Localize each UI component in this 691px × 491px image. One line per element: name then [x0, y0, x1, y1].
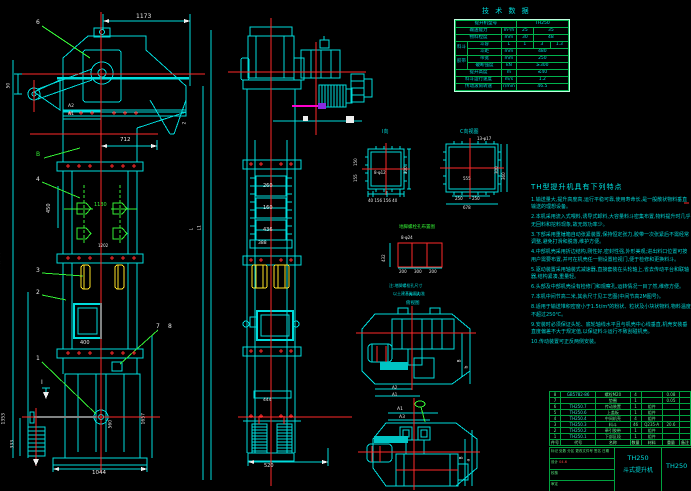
- plan1-title-topview: 俯视图: [406, 302, 420, 307]
- feature-item: 1.输送量大,提升高度高,运行平稳可靠,使用寿命长,是一般散状物料垂直输送的理想…: [531, 197, 691, 212]
- anchor-note-line1: 注:地脚螺栓孔尺寸: [389, 284, 422, 288]
- title-block-drawing-no-cell: TH250: [662, 448, 691, 491]
- tech-value: 46.5: [516, 84, 568, 91]
- bom-header-material: 材料: [641, 440, 662, 446]
- bom-header-name: 名称: [596, 440, 630, 446]
- tech-label: 斗容: [468, 42, 502, 49]
- tech-label: 物料粒度: [456, 35, 502, 42]
- design-label: 设计: [551, 460, 558, 464]
- dim-1173: 1173: [136, 14, 151, 20]
- tech-unit: mm: [502, 35, 517, 42]
- feature-item: 5.驱动装置采用轴装式减速器,直接套装在头轮轴上,省去传动平台和联轴器,结构紧凑…: [531, 267, 691, 282]
- balloon-3: 3: [36, 268, 40, 274]
- view-c-dim-360: 360: [502, 172, 506, 180]
- product-model: TH250: [615, 454, 661, 462]
- dim-1202: 1202: [98, 244, 108, 248]
- dim-1353: 1353: [3, 413, 8, 424]
- tech-label: 带宽: [468, 56, 502, 63]
- tech-value: 25: [516, 28, 533, 35]
- dim-520: 520: [264, 464, 274, 469]
- view-i-title: Ⅰ向: [382, 130, 388, 135]
- tech-unit: kN: [502, 63, 517, 70]
- plan1-dim-a1: A1: [392, 393, 397, 397]
- drawing-number: TH250: [666, 462, 691, 470]
- plan2-dim-b: B: [461, 456, 466, 459]
- bom-header-remark: 备注: [679, 440, 690, 446]
- dim-560: 560: [110, 420, 115, 429]
- plan2-dim-a: a: [468, 459, 473, 462]
- tech-label: 斗距: [468, 49, 502, 56]
- tech-unit: m: [502, 70, 517, 77]
- dim-712: 712: [120, 138, 131, 144]
- bom-header-qty: 数量: [630, 440, 641, 446]
- tech-unit: m³/h: [502, 28, 517, 35]
- dim-1657: 1657: [143, 413, 148, 424]
- features-notes-block: TH型提升机具有下列特点 1.输送量大,提升高度高,运行平稳可靠,使用寿命长,是…: [531, 182, 691, 392]
- feature-item: 2.本机采用流入式喂料,诱导式卸料,大容量料斗密集布置,物料提升时几乎无回料和挖…: [531, 214, 691, 229]
- approve-row: 审定: [550, 481, 614, 491]
- tech-label: 料斗运行速度: [456, 77, 502, 84]
- dim-333: 333: [12, 440, 17, 449]
- tech-value: 1.2: [516, 77, 568, 84]
- title-block-revision-grid: 标记 处数 分区 更改文件号 签名 日期 设计 04.6 校核 审定: [550, 448, 615, 491]
- feature-item: 4.中部机壳采用折边结构,刚性好,密封性强,外形美观;进出料口位置可按用户需要布…: [531, 249, 691, 264]
- anchor-dim-432: 432: [382, 254, 386, 262]
- tech-label: 输送能力: [456, 28, 502, 35]
- dim-388: 388: [258, 242, 267, 247]
- anchor-dim-300: 300: [414, 270, 422, 274]
- feature-item: 8.适用于输送堆积密度小于1.5t/m³的粉状、粒状及小块状物料,物料温度不超过…: [531, 304, 691, 319]
- view-c-dim-300: 300: [495, 166, 499, 174]
- plan1-title-aa: A—A: [409, 294, 420, 299]
- tech-label: 提升机型号: [456, 21, 517, 28]
- bom-header-no: 件号: [550, 440, 561, 446]
- view-i-bottom-dims: 40 156 156 40: [368, 199, 397, 203]
- tech-label: 提升高度: [456, 70, 502, 77]
- view-i-dim-155: 155: [354, 174, 358, 182]
- anchor-layout-title: 地脚螺栓孔布置图: [399, 226, 435, 231]
- tech-label: 破断强度: [468, 63, 502, 70]
- product-name: 斗式提升机: [615, 465, 661, 474]
- cad-drawing-canvas: 1173 6 50 A2 A1 2 712 B 4 450 1130 1202 …: [0, 0, 691, 491]
- tech-value: 35: [533, 28, 568, 35]
- view-i-hole-note: 8-φ12: [374, 171, 386, 175]
- plan2-dim-a1: A1: [397, 408, 403, 413]
- tech-unit: r/min: [502, 84, 517, 91]
- design-row: 设计 04.6: [550, 459, 614, 470]
- dim-1044: 1044: [92, 471, 106, 477]
- check-row: 校核: [550, 470, 614, 481]
- view-c-title: C向视图: [460, 130, 479, 135]
- tech-unit: L: [502, 42, 517, 49]
- tech-value: 3: [533, 42, 550, 49]
- section-mark-1: Ⅰ: [41, 380, 43, 386]
- tech-table-title: 技 术 数 据: [482, 8, 531, 15]
- tech-data-table: 提升机型号 TH250 输送能力 m³/h 25 35 物料粒度 mm 30 4…: [455, 20, 569, 91]
- dim-a1: A1: [68, 113, 74, 118]
- red-signature-note: 04.6: [559, 460, 567, 464]
- tech-value: 480: [516, 49, 568, 56]
- title-block-product-cell: TH250 斗式提升机: [615, 448, 662, 491]
- tech-value: 1: [516, 42, 533, 49]
- bom-header-weight: 重量: [662, 440, 679, 446]
- bom-table: 8GB5782-86螺栓M2040.08 7垫圈10.05 6TH250.7传动…: [549, 391, 691, 446]
- tech-value: TH250: [516, 21, 568, 28]
- view-c-dim-250b: 250: [472, 197, 480, 201]
- plan2-dim-a3: A3: [399, 416, 405, 421]
- feature-item: 3.下部采用重锤箱自动张紧装置,保持恒定张力,胶带一次张紧后不需经常调整,避免打…: [531, 232, 691, 247]
- feature-item: 6.头部及中部机壳设有检修门和观察孔,运转情况一目了然,维修方便。: [531, 284, 691, 292]
- view-arrow-b: B: [36, 152, 40, 158]
- dim-260: 260: [263, 184, 273, 189]
- view-i-dim-300: 300: [404, 166, 408, 174]
- anchor-dim-200b: 200: [429, 270, 437, 274]
- revision-header-row: 标记 处数 分区 更改文件号 签名 日期: [550, 448, 614, 459]
- tech-value: 30: [516, 35, 533, 42]
- tech-value: 48: [533, 35, 568, 42]
- balloon-7: 7: [156, 324, 160, 330]
- tech-group: 胶带: [456, 56, 468, 70]
- feature-item: 7.本机中间节高二米,其余尺寸见工艺图(中间节高2M图号)。: [531, 294, 691, 302]
- view-c-hole-note: 13-φ17: [477, 137, 491, 141]
- anchor-hole-note: 8-φ24: [401, 236, 413, 240]
- view-i-dim-150: 150: [354, 158, 358, 166]
- balloon-6: 6: [36, 20, 40, 26]
- feature-item: 9.安装时必须保证头轮、底轮轴线水平且与机壳中心线垂直,机壳安装垂直度偏差不大于…: [531, 322, 691, 337]
- balloon-1: 1: [36, 356, 40, 362]
- balloon-2: 2: [36, 290, 40, 296]
- dim-436: 436: [263, 228, 273, 233]
- dim-l: L: [191, 228, 196, 231]
- balloon-8: 8: [168, 324, 172, 330]
- tech-value: ≤40: [516, 70, 568, 77]
- dim-50: 50: [8, 83, 13, 89]
- dim-160: 160: [263, 206, 273, 211]
- tech-unit: mm: [502, 56, 517, 63]
- plan1-dim-a2: A2: [392, 386, 397, 390]
- balloon-4: 4: [36, 177, 40, 183]
- view-c-dim-250a: 250: [455, 197, 463, 201]
- title-block: 标记 处数 分区 更改文件号 签名 日期 设计 04.6 校核 审定 TH250…: [549, 447, 691, 491]
- dim-450: 450: [47, 203, 52, 213]
- view-c-dim-678: 678: [463, 206, 471, 210]
- tech-group: 料斗: [456, 42, 468, 56]
- bom-header-code: 代号: [561, 440, 596, 446]
- features-title: TH型提升机具有下列特点: [531, 182, 691, 193]
- plan1-dim-b2: b: [466, 366, 471, 369]
- tech-label: 传动滚筒转速: [456, 84, 502, 91]
- dim-h-total: H(提升高度): [0, 252, 2, 277]
- view-c-dim-555: 555: [463, 177, 471, 181]
- plan1-dim-b: B: [459, 359, 464, 362]
- tech-value: 1.3: [550, 42, 568, 49]
- dim-l1: L1: [199, 225, 204, 230]
- dim-a2: A2: [68, 105, 74, 110]
- feature-item: 10.传动装置可正反两侧安装。: [531, 339, 691, 347]
- dim-400: 400: [80, 341, 90, 346]
- dim-1130: 1130: [94, 203, 107, 208]
- tech-unit: m/s: [502, 77, 517, 84]
- anchor-dim-200a: 200: [399, 270, 407, 274]
- tech-value: ≥300: [516, 63, 568, 70]
- dim-444: 444: [263, 399, 272, 404]
- dim-2: 2: [184, 122, 189, 125]
- tech-unit: mm: [502, 49, 517, 56]
- tech-value: 250: [516, 56, 568, 63]
